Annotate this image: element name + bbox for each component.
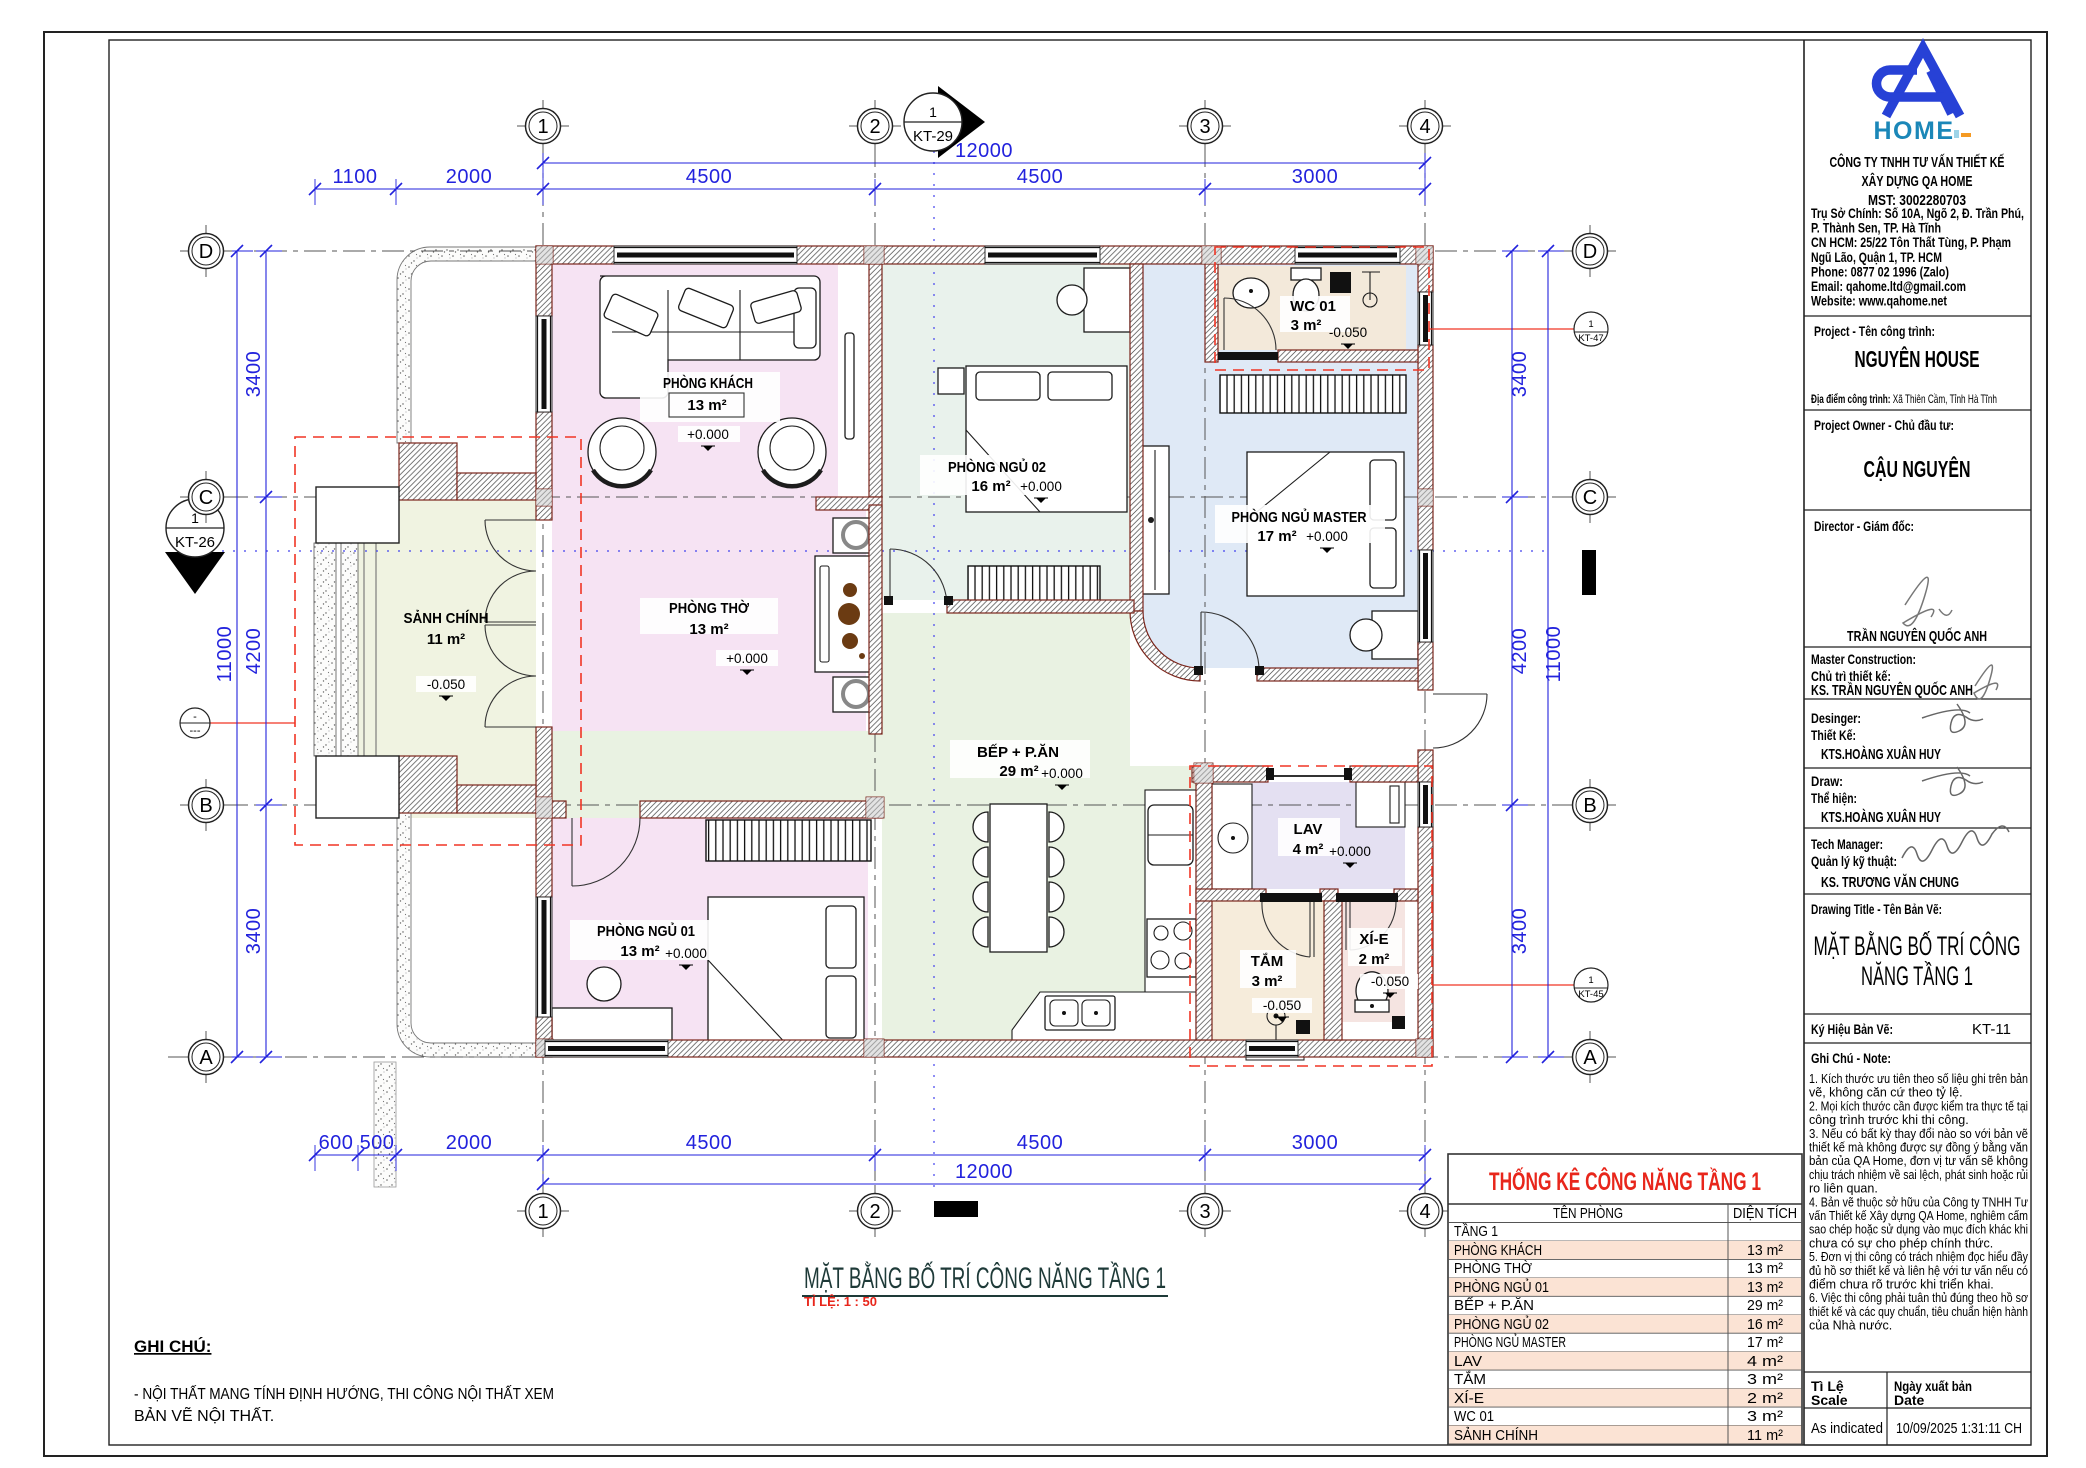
svg-text:11 m²: 11 m²	[1747, 1427, 1783, 1444]
svg-text:Desinger:: Desinger:	[1811, 710, 1861, 726]
svg-text:KTS.HOÀNG XUÂN HUY: KTS.HOÀNG XUÂN HUY	[1821, 808, 1941, 826]
svg-text:13 m²: 13 m²	[1747, 1279, 1783, 1296]
svg-text:đủ hồ sơ thiết kế và liên hệ v: đủ hồ sơ thiết kế và liên hệ với tư vấn …	[1809, 1264, 2028, 1278]
svg-text:vấn Thiết kế Xây dựng QA Home,: vấn Thiết kế Xây dựng QA Home, nghiêm cấ…	[1809, 1209, 2028, 1223]
svg-text:Director - Giám đốc:: Director - Giám đốc:	[1814, 518, 1914, 534]
svg-text:2000: 2000	[446, 166, 493, 188]
svg-text:1100: 1100	[332, 166, 377, 188]
svg-text:11 m²: 11 m²	[427, 631, 465, 648]
svg-text:Project - Tên công trình:: Project - Tên công trình:	[1814, 323, 1935, 339]
svg-text:1. Kích thước ưu tiên theo số: 1. Kích thước ưu tiên theo số liệu ghi t…	[1809, 1072, 2028, 1086]
svg-text:600: 600	[319, 1132, 354, 1154]
svg-text:2. Mọi kích thước cần được kiể: 2. Mọi kích thước cần được kiểm tra thực…	[1809, 1099, 2028, 1113]
svg-text:P. Thành Sen, TP. Hà Tĩnh: P. Thành Sen, TP. Hà Tĩnh	[1811, 220, 1941, 236]
svg-text:Project Owner - Chủ đầu tư:: Project Owner - Chủ đầu tư:	[1814, 417, 1954, 433]
svg-text:3400: 3400	[1509, 351, 1531, 398]
svg-text:+0.000: +0.000	[726, 651, 768, 666]
svg-text:-0.050: -0.050	[1371, 974, 1409, 989]
svg-text:Thiết Kế:: Thiết Kế:	[1811, 727, 1856, 743]
svg-text:3: 3	[1199, 116, 1210, 138]
svg-text:1: 1	[537, 116, 548, 138]
svg-text:XÍ-E: XÍ-E	[1359, 931, 1388, 948]
svg-text:4500: 4500	[1017, 166, 1064, 188]
svg-text:C: C	[199, 487, 213, 509]
svg-text:+0.000: +0.000	[1329, 844, 1371, 859]
svg-text:B: B	[1583, 795, 1596, 817]
svg-text:As indicated: As indicated	[1811, 1420, 1883, 1437]
svg-text:16 m²: 16 m²	[1747, 1316, 1783, 1333]
svg-text:4 m²: 4 m²	[1293, 841, 1324, 858]
svg-text:XÍ-E: XÍ-E	[1454, 1390, 1484, 1407]
svg-text:NGUYÊN HOUSE: NGUYÊN HOUSE	[1855, 345, 1980, 372]
svg-text:4200: 4200	[1509, 628, 1531, 675]
svg-text:GHI CHÚ:: GHI CHÚ:	[134, 1337, 211, 1356]
svg-text:6. Việc thi công phải tuân thủ: 6. Việc thi công phải tuân thủ đúng theo…	[1809, 1291, 2028, 1305]
svg-text:+0.000: +0.000	[1041, 766, 1083, 781]
svg-text:WC 01: WC 01	[1454, 1408, 1494, 1425]
svg-text:XÂY DỰNG QA HOME: XÂY DỰNG QA HOME	[1862, 172, 1973, 190]
svg-text:-: -	[193, 711, 197, 723]
svg-text:PHÒNG THỜ: PHÒNG THỜ	[1454, 1260, 1532, 1277]
svg-text:PHÒNG NGỦ 02: PHÒNG NGỦ 02	[1454, 1315, 1549, 1333]
svg-text:-0.050: -0.050	[427, 677, 465, 692]
svg-text:3 m²: 3 m²	[1252, 973, 1283, 990]
svg-text:2000: 2000	[446, 1132, 493, 1154]
svg-text:MẶT BẰNG BỐ TRÍ CÔNG NĂNG TẦNG: MẶT BẰNG BỐ TRÍ CÔNG NĂNG TẦNG 1	[804, 1261, 1166, 1295]
svg-text:PHÒNG NGỦ 02: PHÒNG NGỦ 02	[948, 458, 1046, 476]
svg-text:TẮM: TẮM	[1454, 1370, 1486, 1388]
svg-text:1: 1	[1588, 319, 1593, 330]
svg-text:2 m²: 2 m²	[1359, 951, 1390, 968]
svg-text:PHÒNG NGỦ 01: PHÒNG NGỦ 01	[597, 922, 695, 940]
svg-text:sao chép hoặc sử dụng vào mục: sao chép hoặc sử dụng vào mục đích khác …	[1809, 1223, 2028, 1237]
svg-text:ro liên quan.: ro liên quan.	[1809, 1182, 1878, 1196]
svg-text:DIỆN TÍCH: DIỆN TÍCH	[1733, 1205, 1797, 1222]
svg-text:MẶT BẰNG BỐ TRÍ CÔNG: MẶT BẰNG BỐ TRÍ CÔNG	[1814, 929, 2021, 961]
svg-text:Drawing Title - Tên Bản Vẽ:: Drawing Title - Tên Bản Vẽ:	[1811, 901, 1942, 917]
svg-text:29 m²: 29 m²	[1747, 1297, 1783, 1314]
svg-text:KT-29: KT-29	[913, 128, 953, 145]
svg-text:10/09/2025 1:31:11 CH: 10/09/2025 1:31:11 CH	[1896, 1420, 2022, 1437]
svg-text:-0.050: -0.050	[1329, 325, 1367, 340]
svg-text:4200: 4200	[243, 628, 265, 675]
svg-text:3 m²: 3 m²	[1747, 1371, 1783, 1388]
svg-text:13 m²: 13 m²	[620, 943, 659, 960]
svg-text:LAV: LAV	[1454, 1353, 1482, 1370]
svg-text:CẬU NGUYÊN: CẬU NGUYÊN	[1864, 455, 1971, 482]
svg-text:KS. TRƯƠNG VĂN CHUNG: KS. TRƯƠNG VĂN CHUNG	[1821, 874, 1959, 891]
svg-text:Website: www.qahome.net: Website: www.qahome.net	[1811, 293, 1947, 309]
svg-text:Master Construction:: Master Construction:	[1811, 651, 1916, 667]
svg-text:4. Bản vẽ thuộc sở hữu của Côn: 4. Bản vẽ thuộc sở hữu của Công ty TNHH …	[1809, 1195, 2028, 1209]
svg-text:Date: Date	[1894, 1392, 1925, 1408]
svg-text:KT-11: KT-11	[1972, 1021, 2011, 1038]
svg-text:Quản lý kỹ thuật:: Quản lý kỹ thuật:	[1811, 853, 1897, 869]
svg-text:Scale: Scale	[1811, 1392, 1848, 1408]
svg-text:2: 2	[869, 116, 880, 138]
svg-text:Ngũ Lão, Quận 1, TP. HCM: Ngũ Lão, Quận 1, TP. HCM	[1811, 249, 1942, 265]
svg-text:PHÒNG THỜ: PHÒNG THỜ	[669, 599, 749, 617]
svg-text:17 m²: 17 m²	[1257, 528, 1296, 545]
svg-text:KT-47: KT-47	[1578, 333, 1603, 344]
svg-text:bản của QA Home, đơn vị tư vấn: bản của QA Home, đơn vị tư vấn sẽ không	[1809, 1154, 2028, 1168]
svg-text:KT-45: KT-45	[1578, 989, 1603, 1000]
svg-text:3 m²: 3 m²	[1747, 1408, 1783, 1425]
svg-text:CÔNG TY TNHH TƯ VẤN THIẾT KẾ: CÔNG TY TNHH TƯ VẤN THIẾT KẾ	[1830, 153, 2005, 171]
svg-text:16 m²: 16 m²	[971, 478, 1010, 495]
svg-text:D: D	[1583, 241, 1597, 263]
svg-text:PHÒNG NGỦ MASTER: PHÒNG NGỦ MASTER	[1454, 1333, 1566, 1351]
svg-text:LAV: LAV	[1294, 821, 1323, 838]
svg-text:TẦNG 1: TẦNG 1	[1454, 1223, 1498, 1240]
svg-text:1: 1	[1588, 975, 1593, 986]
svg-text:TÊN PHÒNG: TÊN PHÒNG	[1553, 1205, 1623, 1222]
svg-text:PHÒNG KHÁCH: PHÒNG KHÁCH	[1454, 1242, 1542, 1259]
svg-text:12000: 12000	[955, 1161, 1013, 1183]
svg-text:HOME: HOME	[1874, 117, 1955, 145]
svg-text:3400: 3400	[1509, 908, 1531, 955]
svg-text:vẽ, không căn cứ theo tỷ lệ.: vẽ, không căn cứ theo tỷ lệ.	[1809, 1086, 1963, 1100]
svg-text:---: ---	[190, 725, 201, 737]
svg-text:Trụ Sở Chính: Số 10A, Ngõ 2, Đ: Trụ Sở Chính: Số 10A, Ngõ 2, Đ. Trần Phú…	[1811, 205, 2024, 221]
svg-text:17 m²: 17 m²	[1747, 1334, 1783, 1351]
svg-text:2: 2	[869, 1201, 880, 1223]
svg-text:4500: 4500	[686, 166, 733, 188]
svg-text:3 m²: 3 m²	[1291, 317, 1322, 334]
svg-text:Địa điểm công trình: Xã Thiên: Địa điểm công trình: Xã Thiên Cầm, Tỉnh …	[1811, 392, 1997, 406]
svg-text:chịu trách nhiệm về sai lệch,: chịu trách nhiệm về sai lệch, phát sinh …	[1809, 1168, 2028, 1182]
svg-text:3000: 3000	[1292, 166, 1339, 188]
svg-text:+0.000: +0.000	[687, 427, 729, 442]
svg-text:THỐNG KÊ CÔNG NĂNG TẦNG 1: THỐNG KÊ CÔNG NĂNG TẦNG 1	[1489, 1166, 1761, 1196]
svg-text:KS. TRẦN NGUYÊN QUỐC ANH: KS. TRẦN NGUYÊN QUỐC ANH	[1811, 681, 1973, 699]
svg-text:của Nhà nước.: của Nhà nước.	[1809, 1319, 1892, 1333]
svg-text:PHÒNG KHÁCH: PHÒNG KHÁCH	[663, 374, 753, 392]
svg-text:SẢNH CHÍNH: SẢNH CHÍNH	[404, 610, 489, 627]
svg-text:Ký Hiệu Bản Vẽ:: Ký Hiệu Bản Vẽ:	[1811, 1021, 1893, 1037]
svg-text:PHÒNG NGỦ 01: PHÒNG NGỦ 01	[1454, 1278, 1549, 1296]
svg-text:Draw:: Draw:	[1811, 773, 1843, 789]
svg-text:BẢN VẼ NỘI THẤT.: BẢN VẼ NỘI THẤT.	[134, 1405, 274, 1425]
svg-text:Ghi Chú - Note:: Ghi Chú - Note:	[1811, 1050, 1891, 1066]
svg-text:+0.000: +0.000	[1020, 479, 1062, 494]
svg-text:Phone: 0877 02 1996 (Zalo): Phone: 0877 02 1996 (Zalo)	[1811, 263, 1949, 279]
svg-text:KT-26: KT-26	[175, 534, 215, 551]
svg-text:13 m²: 13 m²	[1747, 1242, 1783, 1259]
svg-text:A: A	[1583, 1047, 1597, 1069]
svg-text:TRẦN NGUYÊN QUỐC ANH: TRẦN NGUYÊN QUỐC ANH	[1847, 627, 1987, 645]
svg-text:-0.050: -0.050	[1263, 998, 1301, 1013]
svg-text:TỈ LỆ: 1 : 50: TỈ LỆ: 1 : 50	[804, 1294, 877, 1309]
svg-text:4: 4	[1419, 116, 1430, 138]
svg-text:13 m²: 13 m²	[689, 621, 728, 638]
svg-text:D: D	[199, 241, 213, 263]
svg-text:- NỘI THẤT MANG TÍNH ĐỊNH HƯỚN: - NỘI THẤT MANG TÍNH ĐỊNH HƯỚNG, THI CÔN…	[134, 1384, 554, 1403]
svg-text:thiết kế mà không được sự đồng: thiết kế mà không được sự đồng ý bằng vă…	[1809, 1140, 2028, 1155]
svg-text:NĂNG TẦNG 1: NĂNG TẦNG 1	[1861, 960, 1973, 991]
svg-text:3. Nếu có bất kỳ thay đổi nào: 3. Nếu có bất kỳ thay đổi nào so với bản…	[1809, 1127, 2028, 1141]
svg-text:Thể hiện:: Thể hiện:	[1811, 790, 1857, 806]
svg-text:12000: 12000	[955, 140, 1013, 162]
svg-text:11000: 11000	[1543, 626, 1565, 683]
svg-text:13 m²: 13 m²	[687, 397, 726, 414]
svg-text:1: 1	[929, 104, 937, 120]
svg-text:B: B	[199, 795, 212, 817]
svg-text:thiết kế và các quy chuẩn, tiê: thiết kế và các quy chuẩn, tiêu chuẩn hi…	[1809, 1305, 2028, 1319]
svg-text:TẮM: TẮM	[1251, 952, 1284, 970]
svg-text:3: 3	[1199, 1201, 1210, 1223]
svg-text:4500: 4500	[686, 1132, 733, 1154]
svg-text:3000: 3000	[1292, 1132, 1339, 1154]
svg-text:500: 500	[360, 1132, 395, 1154]
svg-text:A: A	[199, 1047, 213, 1069]
svg-text:C: C	[1583, 487, 1597, 509]
svg-text:3400: 3400	[243, 351, 265, 398]
svg-text:+0.000: +0.000	[665, 946, 707, 961]
svg-text:5. Đơn vị thi công có trách nh: 5. Đơn vị thi công có trách nhiệm đọc hi…	[1809, 1250, 2029, 1264]
svg-text:WC 01: WC 01	[1290, 298, 1336, 315]
svg-text:PHÒNG NGỦ MASTER: PHÒNG NGỦ MASTER	[1232, 508, 1367, 526]
svg-text:chưa có sự cho phép chính thức: chưa có sự cho phép chính thức.	[1809, 1236, 1993, 1250]
svg-text:BẾP + P.ĂN: BẾP + P.ĂN	[1454, 1297, 1534, 1314]
svg-text:4500: 4500	[1017, 1132, 1064, 1154]
svg-text:3400: 3400	[243, 908, 265, 955]
svg-text:điểm chưa rõ trước khi triển k: điểm chưa rõ trước khi triển khai.	[1809, 1278, 1994, 1292]
svg-text:2 m²: 2 m²	[1747, 1390, 1783, 1407]
svg-text:SẢNH CHÍNH: SẢNH CHÍNH	[1454, 1427, 1538, 1444]
svg-text:BẾP + P.ĂN: BẾP + P.ĂN	[977, 744, 1059, 761]
svg-text:CN HCM: 25/22 Tôn Thất Tùng, P: CN HCM: 25/22 Tôn Thất Tùng, P. Phạm	[1811, 234, 2011, 250]
svg-text:Email: qahome.ltd@gmail.com: Email: qahome.ltd@gmail.com	[1811, 278, 1966, 294]
svg-text:4 m²: 4 m²	[1747, 1353, 1783, 1370]
svg-text:KTS.HOÀNG XUÂN HUY: KTS.HOÀNG XUÂN HUY	[1821, 745, 1941, 763]
svg-text:công trình trước khi thi công.: công trình trước khi thi công.	[1809, 1113, 1969, 1127]
svg-text:13 m²: 13 m²	[1747, 1260, 1783, 1277]
svg-text:Tech Manager:: Tech Manager:	[1811, 836, 1883, 852]
svg-text:4: 4	[1419, 1201, 1430, 1223]
svg-text:+0.000: +0.000	[1306, 529, 1348, 544]
svg-text:11000: 11000	[214, 626, 236, 683]
svg-text:29 m²: 29 m²	[999, 763, 1038, 780]
svg-text:1: 1	[537, 1201, 548, 1223]
